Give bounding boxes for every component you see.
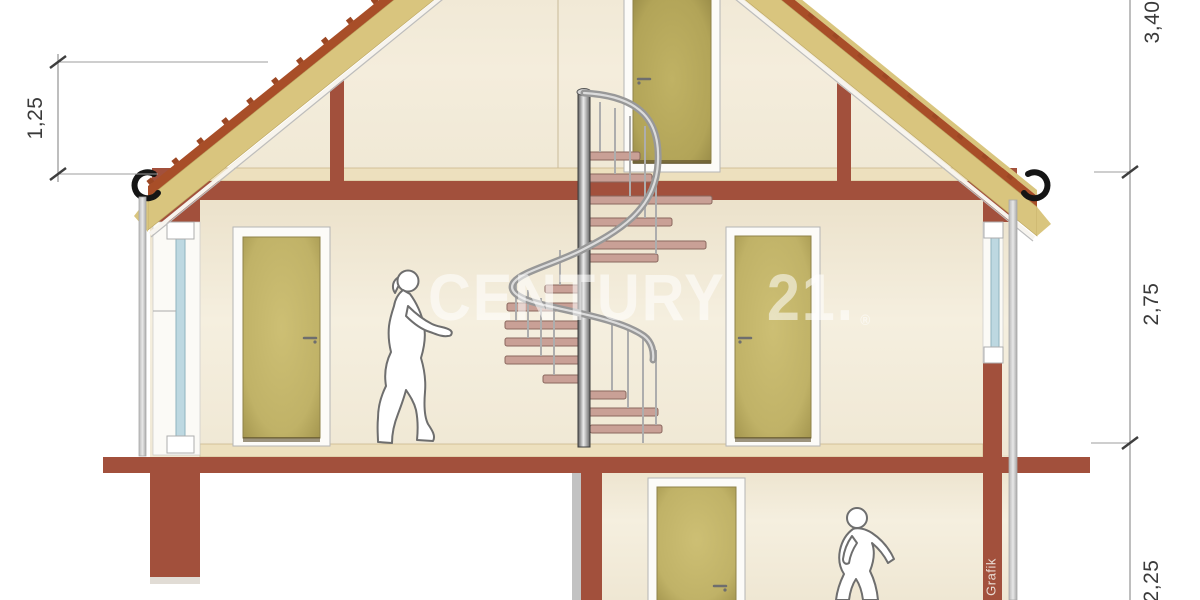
dimension-label-upper-floor: 2,75 [1140, 283, 1164, 326]
grafik-credit: Grafik [984, 558, 999, 596]
dimension-label-knee-wall: 1,25 [24, 97, 48, 140]
ground-door [648, 478, 745, 600]
upper-floor-slab [103, 444, 1090, 473]
downpipe-left [139, 197, 146, 456]
ground-floor-room [578, 455, 1010, 600]
right-wall-window [983, 222, 1003, 363]
stair-pole [578, 92, 590, 447]
attic-stud-left [330, 75, 344, 181]
pier-shadow [150, 577, 200, 584]
basement-wall-left [572, 473, 602, 600]
upper-door-left [233, 227, 330, 446]
attic-stud-right [837, 83, 851, 181]
upper-door-right [726, 227, 820, 446]
downpipe-right [1009, 200, 1017, 600]
dimension-label-ridge: 3,40 [1141, 1, 1165, 44]
attic-door [624, 0, 720, 172]
architectural-section-canvas: 1,25 3,40 2,75 2,25 CENTURY 21. ® Grafik [0, 0, 1200, 600]
window-glass-left [176, 237, 185, 437]
dimension-label-ground-floor: 2,25 [1140, 560, 1164, 600]
foundation-pier [150, 473, 200, 577]
left-wall-window [153, 222, 200, 455]
section-drawing [0, 0, 1200, 600]
window-glass-right [991, 237, 999, 348]
